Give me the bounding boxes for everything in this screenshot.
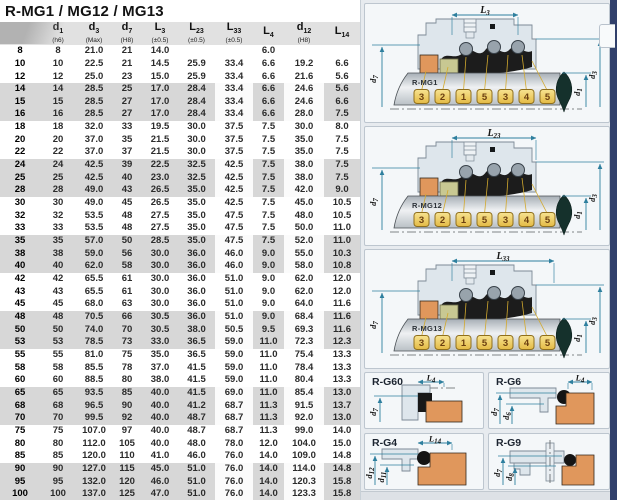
value-cell: 9.0 [253,273,284,286]
part-balloon: 3 [419,92,424,103]
value-cell: 30.0 [142,273,178,286]
value-cell: 14.0 [253,450,284,463]
value-cell: 52.0 [284,235,324,248]
value-cell: 51.0 [178,463,215,476]
value-cell: 8 [40,45,76,58]
value-cell: 68.7 [215,412,253,425]
value-cell: 33.4 [215,71,253,84]
value-cell: 45 [40,298,76,311]
value-cell: 24.6 [284,83,324,96]
value-cell: 51.0 [178,476,215,489]
value-cell: 76.0 [215,488,253,500]
table-row: 353557.05028.535.047.57.552.011.0 [0,235,360,248]
value-cell: 7.5 [253,159,284,172]
table-row: 282849.04326.535.042.57.542.09.0 [0,184,360,197]
value-cell: 125 [112,488,142,500]
value-cell: 14.8 [324,450,360,463]
value-cell: 38.0 [284,159,324,172]
value-cell: 49.0 [76,184,112,197]
table-row: 181832.03319.530.037.57.530.08.0 [0,121,360,134]
value-cell: 50.0 [284,222,324,235]
value-cell: 30.0 [142,298,178,311]
part-balloon: 3 [503,215,508,226]
table-row: 151528.52717.028.433.46.624.66.6 [0,96,360,109]
value-cell: 110 [112,450,142,463]
value-cell: 11.3 [253,400,284,413]
value-cell: 37 [112,146,142,159]
value-cell: 93.5 [76,387,112,400]
dim-label-L4: L4 [575,374,585,385]
value-cell: 50 [112,235,142,248]
value-cell: 24 [40,159,76,172]
value-cell: 14 [40,83,76,96]
value-cell: 7.5 [253,134,284,147]
part-balloon: 3 [419,338,424,349]
value-cell: 10.5 [324,210,360,223]
value-cell: 43 [112,184,142,197]
value-cell: 112.0 [76,438,112,451]
part-balloon: 4 [524,338,530,349]
value-cell: 96.5 [76,400,112,413]
table-row: 535378.57333.036.559.011.072.312.3 [0,336,360,349]
value-cell: 28 [40,184,76,197]
value-cell: 42.0 [284,184,324,197]
value-cell: 21.6 [284,71,324,84]
value-cell: 11.0 [253,374,284,387]
table-row: 141428.52517.028.433.46.624.65.6 [0,83,360,96]
diagram-box-g6: R-G6 L4 d7 d6 [488,372,610,429]
part-balloon: 3 [503,338,508,349]
table-row: 484870.56630.536.051.09.068.411.6 [0,311,360,324]
value-cell: 40.0 [142,387,178,400]
part-balloon: 5 [482,338,488,349]
size-cell: 68 [0,400,40,413]
value-cell: 97 [112,425,142,438]
dim-label-d1: d1 [572,88,584,96]
value-cell: 7.5 [253,146,284,159]
table-row: 505074.07030.538.050.59.569.311.6 [0,324,360,337]
value-cell: 33.0 [142,336,178,349]
page-edge-tab [599,24,615,48]
table-header-row: d1(h6) d3(Max) d7(H8) L3(±0.5) L23(±0.5)… [0,22,360,45]
value-cell: 66 [112,311,142,324]
value-cell: 36.0 [178,286,215,299]
value-cell: 48 [40,311,76,324]
value-cell: 51.0 [178,488,215,500]
size-cell: 50 [0,324,40,337]
value-cell: 40 [40,260,76,273]
dim-label-d7: d7 [368,321,380,329]
value-cell: 92 [112,412,142,425]
value-cell: 48.7 [178,412,215,425]
value-cell: 25.9 [178,58,215,71]
size-cell: 65 [0,387,40,400]
value-cell: 30.0 [142,248,178,261]
value-cell: 62.0 [284,286,324,299]
value-cell: 91.5 [284,400,324,413]
diagram-box-g9: R-G9 d7 d8 [488,433,610,490]
value-cell: 15.0 [324,438,360,451]
value-cell: 64.0 [284,298,324,311]
value-cell: 7.5 [253,121,284,134]
value-cell: 51.0 [215,273,253,286]
size-cell: 60 [0,374,40,387]
table-row: 303049.04526.535.042.57.545.010.5 [0,197,360,210]
value-cell: 76.0 [215,476,253,489]
value-cell: 68 [40,400,76,413]
table-row: 333353.54827.535.047.57.550.011.0 [0,222,360,235]
value-cell: 59.0 [215,336,253,349]
value-cell: 99.5 [76,412,112,425]
header-d1: d1(h6) [40,22,76,45]
value-cell: 25 [112,83,142,96]
value-cell: 19.5 [142,121,178,134]
value-cell: 28.4 [178,108,215,121]
value-cell: 17.0 [142,83,178,96]
diagram-box-mg1: L3 R-MG1 3 2 1 5 3 4 5 d7 d1 d3 [364,3,610,123]
value-cell: 12.0 [324,286,360,299]
value-cell: 13.7 [324,400,360,413]
model-label: R-MG1 [412,78,438,87]
value-cell: 25 [40,172,76,185]
value-cell: 68.7 [215,425,253,438]
part-balloon: 1 [461,338,467,349]
dimension-table: d1(h6) d3(Max) d7(H8) L3(±0.5) L23(±0.5)… [0,22,360,500]
value-cell: 35.0 [178,184,215,197]
value-cell: 9.0 [253,248,284,261]
value-cell: 35.0 [284,134,324,147]
value-cell: 120.0 [76,450,112,463]
value-cell: 35 [40,235,76,248]
table-row: 252542.54023.032.542.57.538.07.5 [0,172,360,185]
dim-label-d7: d7 [368,408,380,416]
value-cell: 30 [40,197,76,210]
table-row: 222237.03721.530.037.57.535.07.5 [0,146,360,159]
size-cell: 42 [0,273,40,286]
table-row: 8821.02114.06.0 [0,45,360,58]
value-cell: 47.5 [215,222,253,235]
value-cell: 38 [40,248,76,261]
value-cell: 9.0 [253,286,284,299]
value-cell: 7.5 [324,172,360,185]
value-cell: 15 [40,96,76,109]
page-title: R-MG1 / MG12 / MG13 [0,0,360,22]
value-cell: 30.0 [178,121,215,134]
table-row: 606088.58038.041.559.011.080.413.3 [0,374,360,387]
value-cell: 24.6 [284,96,324,109]
value-cell: 41.0 [142,450,178,463]
value-cell: 12 [40,71,76,84]
value-cell: 33.4 [215,108,253,121]
dim-label-d7: d7 [368,198,380,206]
value-cell: 80.4 [284,374,324,387]
size-cell: 24 [0,159,40,172]
dim-label-L14: L14 [428,435,442,446]
model-label: R-G60 [372,376,403,388]
value-cell: 70 [112,324,142,337]
value-cell: 11.0 [253,336,284,349]
value-cell: 59.0 [215,349,253,362]
value-cell: 85 [40,450,76,463]
value-cell: 42.5 [215,172,253,185]
value-cell: 70 [40,412,76,425]
value-cell: 21 [112,45,142,58]
value-cell: 46.0 [215,248,253,261]
value-cell: 7.5 [253,172,284,185]
value-cell: 32.5 [178,159,215,172]
size-cell: 14 [0,83,40,96]
value-cell: 33 [40,222,76,235]
seal-cross-section-mg13: L33 R-MG13 3 2 1 5 3 4 5 d7 d1 d3 [366,251,608,368]
value-cell: 11.0 [324,222,360,235]
value-cell: 11.0 [253,387,284,400]
part-balloon: 3 [503,92,508,103]
value-cell: 80 [40,438,76,451]
value-cell: 104.0 [284,438,324,451]
value-cell: 26.5 [142,184,178,197]
value-cell: 28.5 [76,96,112,109]
table-row: 100100137.012547.051.076.014.0123.315.8 [0,488,360,500]
value-cell: 35.0 [178,235,215,248]
value-cell: 109.0 [284,450,324,463]
size-cell: 100 [0,488,40,500]
table-row: 242442.53922.532.542.57.538.07.5 [0,159,360,172]
value-cell: 35.0 [178,197,215,210]
header-L14: L14 [324,22,360,45]
value-cell: 40 [112,172,142,185]
value-cell: 30.0 [142,260,178,273]
value-cell [324,45,360,58]
value-cell: 11.0 [253,349,284,362]
value-cell: 46.0 [178,450,215,463]
dim-label-L33: L33 [495,251,510,263]
dim-label-d3: d3 [587,71,599,79]
table-row: 454568.06330.036.051.09.064.011.6 [0,298,360,311]
value-cell: 72.3 [284,336,324,349]
table-row: 707099.59240.048.768.711.392.013.0 [0,412,360,425]
value-cell: 63 [112,298,142,311]
value-cell: 62.0 [284,273,324,286]
value-cell: 61 [112,286,142,299]
value-cell: 11.3 [253,412,284,425]
header-L23: L23(±0.5) [178,22,215,45]
value-cell: 45.0 [142,463,178,476]
value-cell: 75 [40,425,76,438]
value-cell: 92.0 [284,412,324,425]
value-cell: 48.0 [178,438,215,451]
value-cell: 59.0 [215,374,253,387]
value-cell: 9.0 [253,311,284,324]
value-cell: 49.0 [76,197,112,210]
dim-label-d7: d7 [368,75,380,83]
value-cell: 14.0 [253,488,284,500]
value-cell: 55 [40,349,76,362]
value-cell: 10 [40,58,76,71]
value-cell: 36.5 [178,336,215,349]
size-cell: 30 [0,197,40,210]
diagram-panel: L3 R-MG1 3 2 1 5 3 4 5 d7 d1 d3 L23 R-M [360,0,617,500]
size-cell: 32 [0,210,40,223]
value-cell: 61 [112,273,142,286]
seal-cross-section-mg1: L3 R-MG1 3 2 1 5 3 4 5 d7 d1 d3 [366,5,608,122]
table-row: 8080112.010540.048.078.012.0104.015.0 [0,438,360,451]
value-cell: 43 [40,286,76,299]
value-cell: 15.0 [142,71,178,84]
value-cell: 37.0 [142,362,178,375]
value-cell: 26.5 [142,197,178,210]
value-cell: 32.5 [178,172,215,185]
value-cell: 14.0 [142,45,178,58]
value-cell: 11.3 [253,425,284,438]
header-d12: d12(H8) [284,22,324,45]
table-row: 9090127.011545.051.076.014.0114.014.8 [0,463,360,476]
value-cell: 73 [112,336,142,349]
value-cell: 65 [40,387,76,400]
value-cell: 6.6 [324,96,360,109]
value-cell: 12.0 [324,273,360,286]
part-balloon: 5 [545,215,551,226]
value-cell: 105 [112,438,142,451]
value-cell: 11.6 [324,298,360,311]
value-cell: 58.0 [284,260,324,273]
value-cell: 57.0 [76,235,112,248]
value-cell: 13.3 [324,374,360,387]
value-cell: 37.0 [76,146,112,159]
value-cell: 30.5 [142,311,178,324]
value-cell: 11.6 [324,311,360,324]
value-cell: 10.8 [324,260,360,273]
value-cell: 23.0 [142,172,178,185]
value-cell: 33 [112,121,142,134]
value-cell: 132.0 [76,476,112,489]
value-cell: 10.3 [324,248,360,261]
value-cell: 7.5 [253,235,284,248]
value-cell: 28.5 [142,235,178,248]
dim-label-L23: L23 [486,128,501,140]
value-cell: 7.5 [253,210,284,223]
value-cell: 23 [112,71,142,84]
part-balloon: 2 [440,92,445,103]
table-row: 686896.59040.041.268.711.391.513.7 [0,400,360,413]
part-balloon: 1 [461,92,467,103]
value-cell: 68.7 [215,400,253,413]
value-cell: 19.2 [284,58,324,71]
table-row: 424265.56130.036.051.09.062.012.0 [0,273,360,286]
part-balloon: 5 [545,338,551,349]
value-cell: 14.0 [324,425,360,438]
value-cell: 47.0 [142,488,178,500]
size-cell: 38 [0,248,40,261]
value-cell: 36.0 [178,311,215,324]
value-cell: 76.0 [215,463,253,476]
value-cell: 41.5 [178,362,215,375]
size-cell: 25 [0,172,40,185]
table-row: 8585120.011041.046.076.014.0109.014.8 [0,450,360,463]
model-label: R-G9 [496,437,521,449]
value-cell: 42.5 [215,159,253,172]
value-cell: 7.5 [253,184,284,197]
table-row: 161628.52717.028.433.46.628.07.5 [0,108,360,121]
value-cell: 9.0 [324,184,360,197]
value-cell: 53.5 [76,210,112,223]
part-balloon: 3 [419,215,424,226]
value-cell: 22 [40,146,76,159]
size-cell: 75 [0,425,40,438]
value-cell: 95 [40,476,76,489]
datasheet-page: R-MG1 / MG12 / MG13 d1(h6) d3(Max) d7(H8… [0,0,617,500]
value-cell: 114.0 [284,463,324,476]
value-cell: 60 [40,374,76,387]
value-cell: 6.6 [253,71,284,84]
value-cell: 25.9 [178,71,215,84]
table-row: 7575107.09740.048.768.711.399.014.0 [0,425,360,438]
value-cell: 7.5 [324,159,360,172]
value-cell: 56 [112,248,142,261]
value-cell: 35.0 [178,222,215,235]
size-cell: 12 [0,71,40,84]
value-cell: 9.0 [253,260,284,273]
value-cell: 40.0 [142,400,178,413]
value-cell: 14.0 [253,463,284,476]
size-cell: 80 [0,438,40,451]
value-cell: 37.5 [215,134,253,147]
diagram-box-g60: R-G60 L4 d7 [364,372,484,429]
value-cell: 22.5 [142,159,178,172]
table-row: 585885.57837.041.559.011.078.413.3 [0,362,360,375]
value-cell: 30.0 [142,286,178,299]
value-cell: 42 [40,273,76,286]
value-cell: 42.5 [215,197,253,210]
value-cell: 59.0 [215,362,253,375]
table-row: 202037.03521.530.037.57.535.07.5 [0,134,360,147]
value-cell: 38.0 [178,324,215,337]
value-cell: 15.8 [324,488,360,500]
value-cell: 51.0 [215,298,253,311]
value-cell: 42.5 [76,159,112,172]
size-cell: 48 [0,311,40,324]
size-cell: 58 [0,362,40,375]
value-cell: 81.0 [76,349,112,362]
page-right-border [610,0,617,500]
part-balloon: 4 [524,215,530,226]
dim-label-L4: L4 [426,374,436,385]
value-cell: 36.0 [178,260,215,273]
value-cell: 20 [40,134,76,147]
value-cell: 45 [112,197,142,210]
part-balloon: 5 [482,92,488,103]
size-cell: 45 [0,298,40,311]
table-row: 404062.05830.036.046.09.058.010.8 [0,260,360,273]
dim-label-d12: d12 [366,467,376,479]
value-cell: 32 [40,210,76,223]
value-cell: 41.5 [178,387,215,400]
size-cell: 43 [0,286,40,299]
value-cell: 30.0 [178,134,215,147]
value-cell: 14.0 [253,476,284,489]
size-cell: 18 [0,121,40,134]
value-cell: 137.0 [76,488,112,500]
value-cell: 28.0 [284,108,324,121]
value-cell: 17.0 [142,96,178,109]
value-cell: 13.3 [324,362,360,375]
value-cell: 9.0 [253,298,284,311]
header-d3: d3(Max) [76,22,112,45]
value-cell: 120.3 [284,476,324,489]
value-cell: 6.6 [253,58,284,71]
value-cell: 21 [112,58,142,71]
header-size-column [0,22,40,45]
value-cell: 107.0 [76,425,112,438]
